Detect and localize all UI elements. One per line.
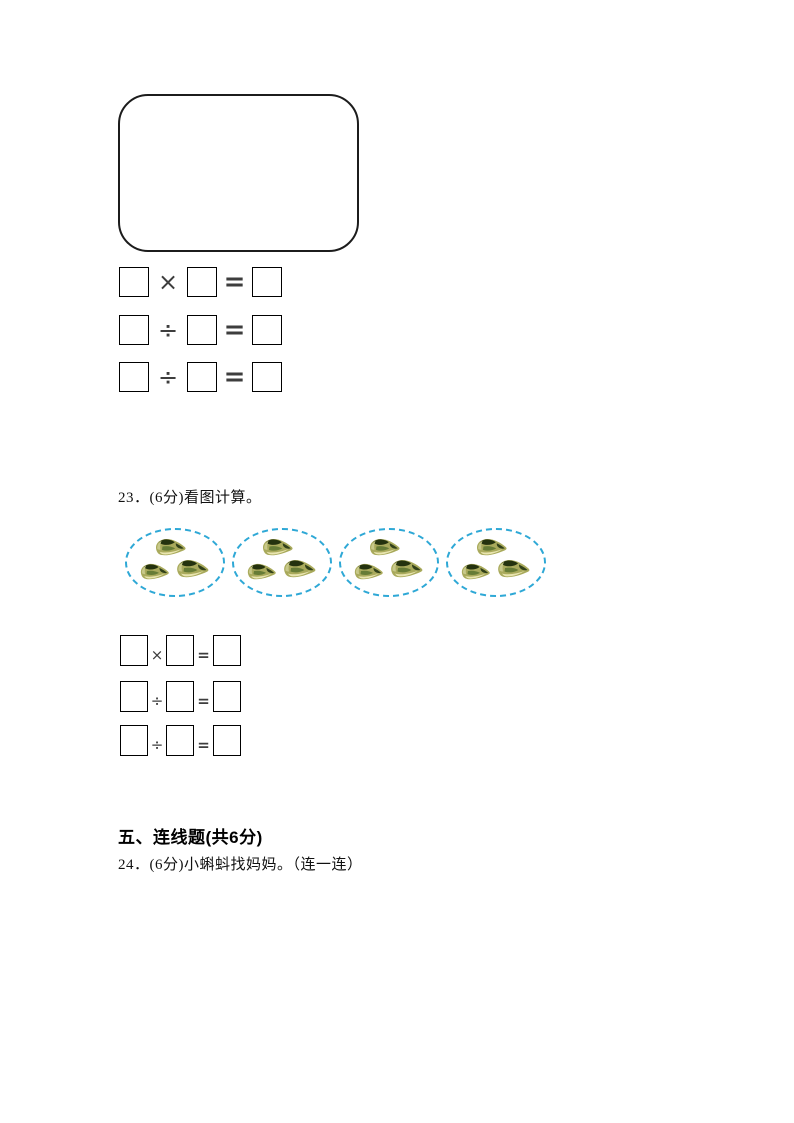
conch-shell-icon [459, 561, 493, 582]
answer-box[interactable] [252, 267, 282, 297]
equals-symbol: = [194, 648, 213, 666]
equation-row: × = [119, 267, 282, 297]
equation-row: × = [120, 635, 241, 666]
shell-group-ellipse [339, 528, 439, 597]
answer-box[interactable] [119, 362, 149, 392]
equation-row: ÷ = [120, 681, 241, 712]
conch-shell-icon [153, 536, 189, 558]
equation-row: ÷ = [119, 315, 282, 345]
shell-groups [125, 528, 546, 597]
multiply-symbol: × [149, 267, 187, 297]
answer-box[interactable] [166, 635, 194, 666]
answer-box[interactable] [119, 267, 149, 297]
section-five-title: 五、连线题(共6分) [118, 823, 263, 848]
conch-shell-icon [281, 557, 319, 580]
conch-shell-icon [352, 561, 386, 582]
shell-group-ellipse [125, 528, 225, 597]
equation-row: ÷ = [119, 362, 282, 392]
divide-symbol: ÷ [148, 738, 166, 756]
conch-shell-icon [260, 536, 296, 558]
conch-shell-icon [474, 536, 510, 558]
question-24-label: 24．(6分)小蝌蚪找妈妈。（连一连） [118, 853, 363, 874]
answer-box[interactable] [187, 315, 217, 345]
answer-box[interactable] [252, 362, 282, 392]
answer-box[interactable] [166, 681, 194, 712]
conch-shell-icon [174, 557, 212, 580]
equals-symbol: = [217, 362, 252, 392]
answer-box[interactable] [166, 725, 194, 756]
equals-symbol: = [194, 738, 213, 756]
answer-box[interactable] [187, 362, 217, 392]
equation-row: ÷ = [120, 725, 241, 756]
equals-symbol: = [217, 267, 252, 297]
answer-box[interactable] [213, 725, 241, 756]
answer-box[interactable] [120, 635, 148, 666]
answer-box[interactable] [120, 725, 148, 756]
equals-symbol: = [217, 315, 252, 345]
divide-symbol: ÷ [148, 694, 166, 712]
empty-picture-frame [118, 94, 359, 252]
answer-box[interactable] [213, 635, 241, 666]
shell-group-ellipse [446, 528, 546, 597]
worksheet-page: × = ÷ = ÷ = 23．(6分)看图计算。 [0, 0, 794, 1123]
answer-box[interactable] [187, 267, 217, 297]
question-23-label: 23．(6分)看图计算。 [118, 486, 262, 507]
multiply-symbol: × [148, 648, 166, 666]
conch-shell-icon [495, 557, 533, 580]
answer-box[interactable] [252, 315, 282, 345]
answer-box[interactable] [120, 681, 148, 712]
conch-shell-icon [367, 536, 403, 558]
divide-symbol: ÷ [149, 315, 187, 345]
shell-group-ellipse [232, 528, 332, 597]
answer-box[interactable] [119, 315, 149, 345]
equals-symbol: = [194, 694, 213, 712]
conch-shell-icon [388, 557, 426, 580]
conch-shell-icon [138, 561, 172, 582]
conch-shell-icon [245, 561, 279, 582]
answer-box[interactable] [213, 681, 241, 712]
divide-symbol: ÷ [149, 362, 187, 392]
